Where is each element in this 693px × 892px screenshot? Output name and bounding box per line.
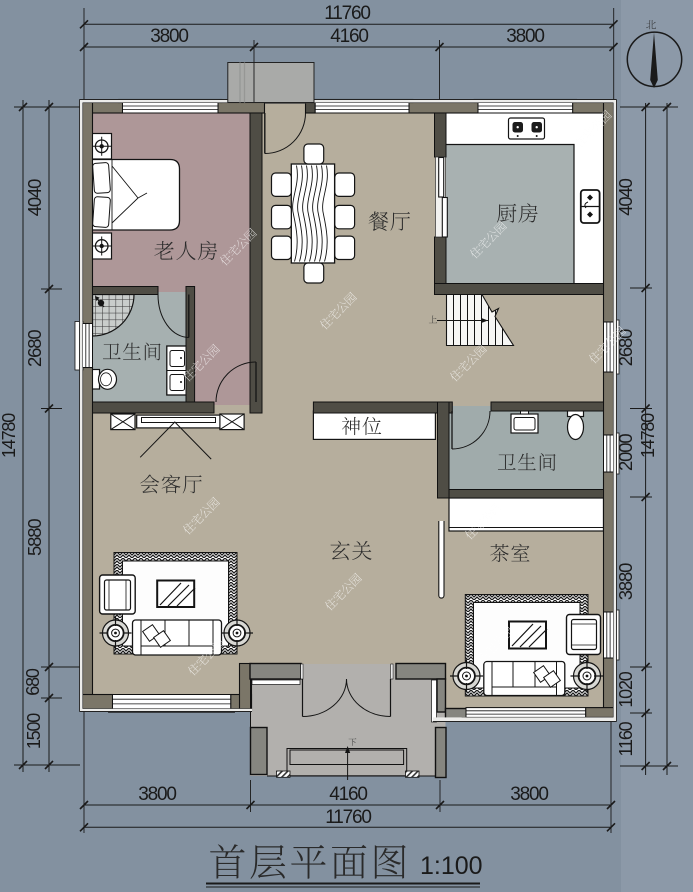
- svg-text:3800: 3800: [138, 784, 176, 805]
- svg-text:11760: 11760: [324, 3, 370, 24]
- svg-text:2680: 2680: [615, 329, 636, 366]
- svg-text:2680: 2680: [24, 330, 45, 367]
- svg-text:3800: 3800: [150, 26, 188, 47]
- svg-text:5880: 5880: [24, 519, 45, 556]
- svg-text:14780: 14780: [0, 413, 19, 458]
- svg-text:680: 680: [23, 668, 43, 696]
- svg-text:4160: 4160: [329, 784, 367, 805]
- svg-text:1160: 1160: [616, 721, 636, 756]
- svg-text:4040: 4040: [615, 178, 636, 215]
- svg-text:3800: 3800: [506, 26, 544, 47]
- svg-text:1500: 1500: [24, 713, 44, 749]
- svg-text:4040: 4040: [24, 179, 45, 216]
- svg-text:3800: 3800: [510, 784, 548, 805]
- svg-text:2000: 2000: [615, 434, 636, 471]
- svg-text:1:100: 1:100: [420, 852, 483, 880]
- svg-text:11760: 11760: [325, 807, 371, 828]
- svg-text:1020: 1020: [616, 671, 636, 707]
- svg-text:14780: 14780: [638, 413, 658, 458]
- svg-text:3880: 3880: [615, 563, 636, 600]
- svg-text:4160: 4160: [330, 26, 368, 47]
